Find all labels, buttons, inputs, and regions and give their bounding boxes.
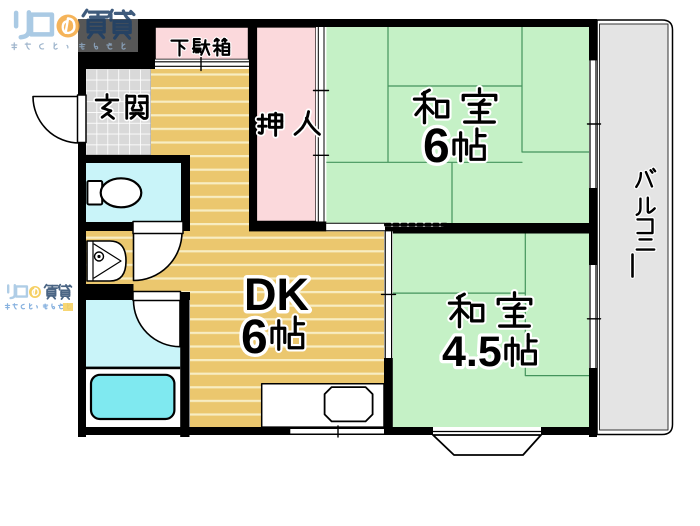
svg-text:6: 6 [241,311,268,364]
svg-text:6: 6 [423,120,450,173]
svg-text:4.5: 4.5 [442,328,502,376]
